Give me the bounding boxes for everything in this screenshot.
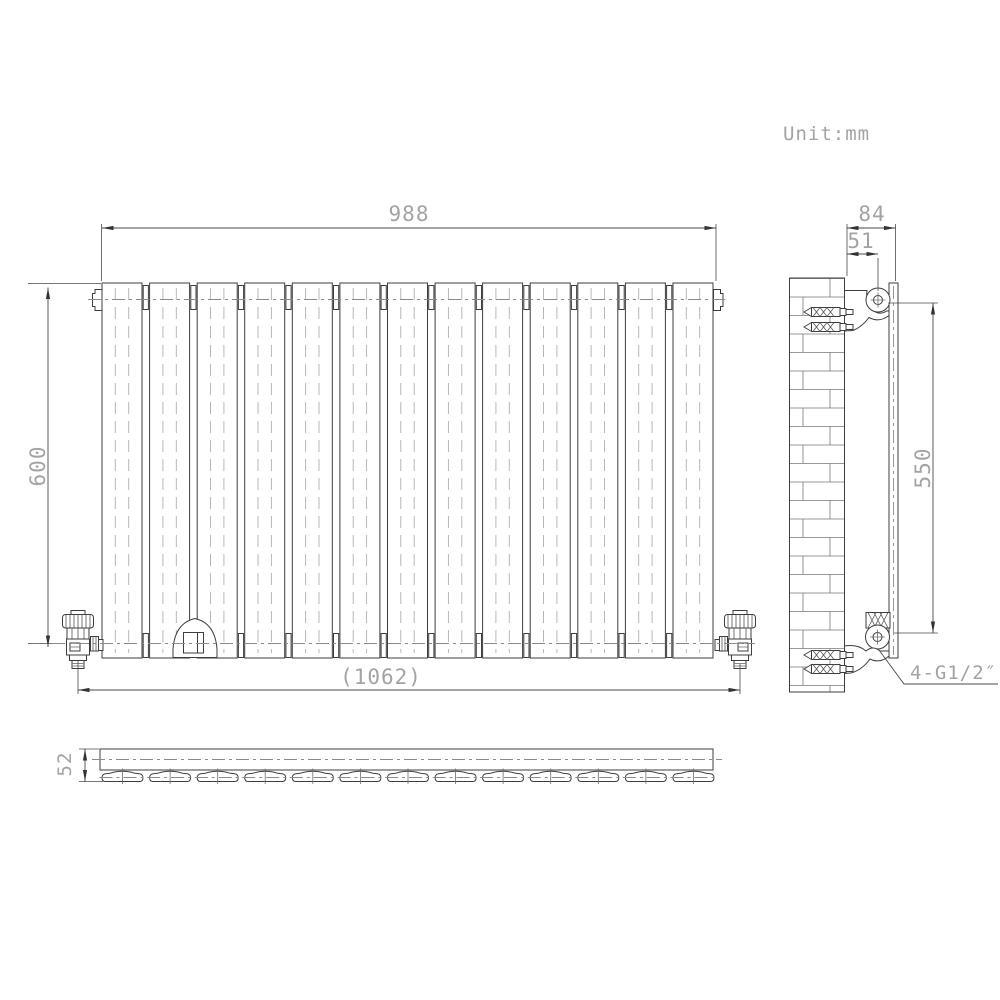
dim-overall-label: (1062) — [340, 665, 422, 689]
dim-plan-depth-label: 52 — [54, 752, 76, 777]
left-end-cap — [93, 290, 103, 311]
right-end-cap — [714, 290, 724, 311]
dim-hook-label: 51 — [847, 229, 874, 253]
radiator-technical-drawing: 988 600 (1062) — [0, 0, 1000, 1000]
technical-drawing-page: 988 600 (1062) — [0, 0, 1000, 1000]
panel-section — [195, 769, 241, 785]
plan-view: 52 — [54, 749, 722, 784]
panel — [197, 283, 237, 658]
panel — [578, 283, 618, 658]
thread-label: 4-G1/2″ — [910, 662, 997, 684]
dimension-width-988: 988 — [102, 202, 717, 281]
panel-section — [242, 769, 288, 785]
dim-depth-label: 84 — [858, 202, 885, 226]
panel — [625, 283, 665, 658]
panel — [102, 283, 142, 658]
panel-section-array — [100, 769, 717, 785]
brick-wall — [790, 278, 845, 692]
panel-section — [575, 769, 621, 785]
dimension-hook-51: 51 — [847, 229, 878, 291]
wall-anchor — [804, 665, 853, 674]
panel — [435, 283, 475, 658]
panel-section — [623, 769, 669, 785]
unit-note: Unit:mm — [783, 123, 870, 145]
panel — [483, 283, 523, 658]
dimension-overall-1062: (1062) — [78, 661, 740, 694]
panel — [292, 283, 332, 658]
panel — [340, 283, 380, 658]
panel — [388, 283, 428, 658]
left-valve — [63, 611, 104, 669]
side-view: 84 51 550 4-G1/2″ — [790, 202, 999, 692]
dim-span-label: 550 — [911, 448, 935, 489]
panel-section — [100, 769, 146, 785]
panel-section — [480, 769, 526, 785]
dimension-depth-52: 52 — [54, 749, 103, 782]
dim-height-label: 600 — [26, 446, 50, 487]
panel-section — [147, 769, 193, 785]
panel-section — [528, 769, 574, 785]
panel — [245, 283, 285, 658]
wall-anchor — [804, 651, 853, 660]
panel — [673, 283, 713, 658]
panel-section — [290, 769, 336, 785]
panel-section — [433, 769, 479, 785]
panel-section — [385, 769, 431, 785]
right-valve — [715, 611, 756, 669]
panel — [150, 283, 190, 658]
front-view: 988 600 (1062) — [26, 202, 756, 694]
wall-anchor — [804, 308, 853, 317]
panel-array — [102, 283, 713, 658]
dim-width-label: 988 — [389, 202, 430, 226]
dimension-height-600: 600 — [26, 284, 101, 648]
wall-anchor — [804, 323, 853, 332]
panel-section — [671, 769, 717, 785]
panel — [530, 283, 570, 658]
panel-section — [337, 769, 383, 785]
